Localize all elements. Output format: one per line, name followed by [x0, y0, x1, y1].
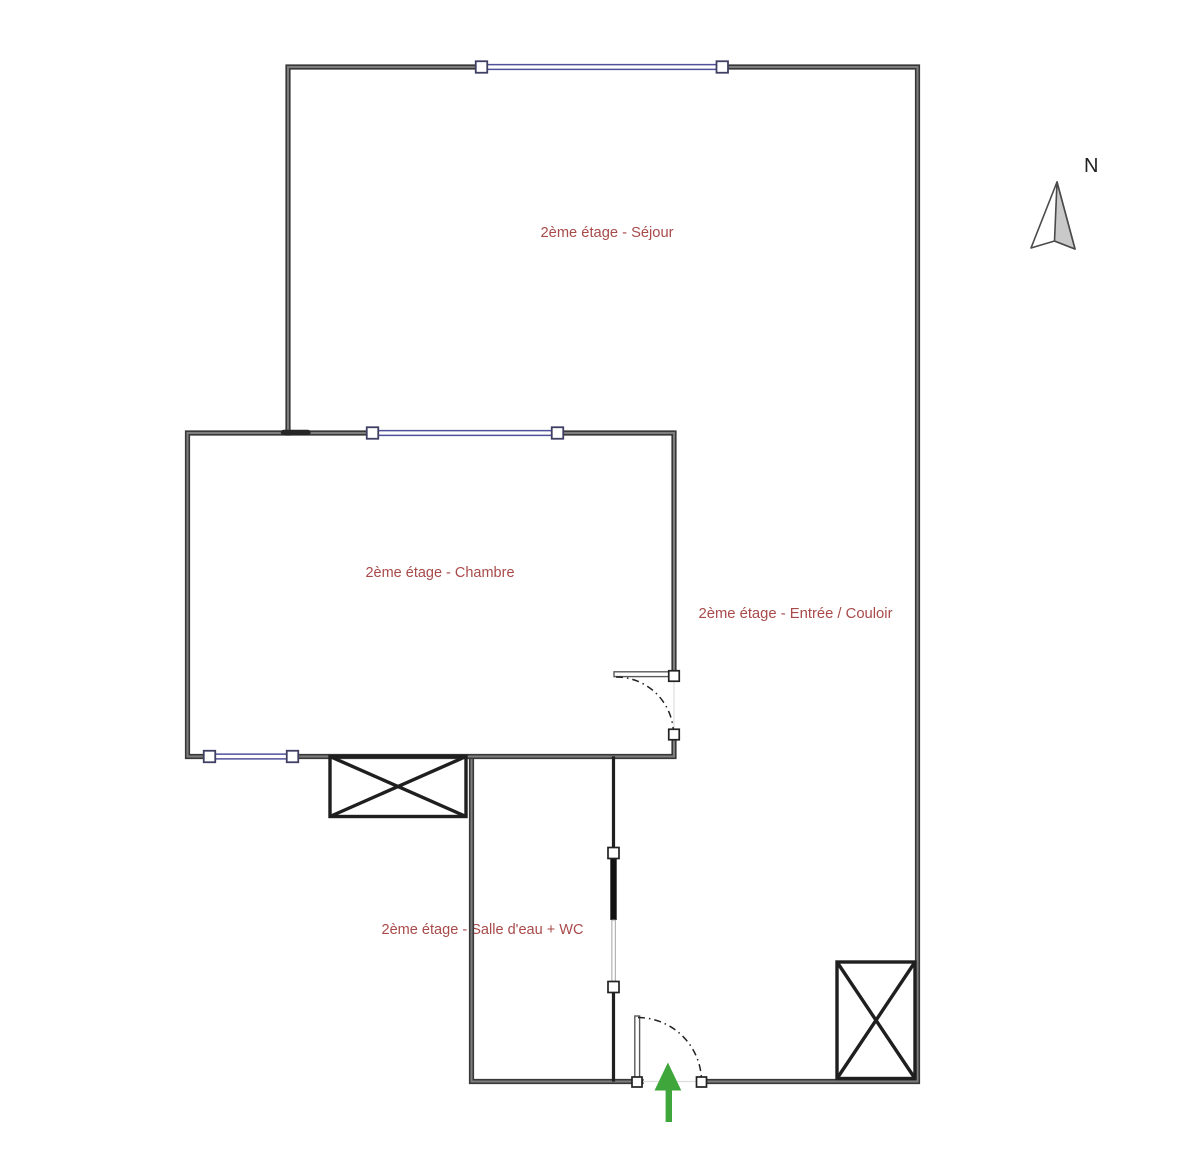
svg-text:N: N [1084, 155, 1098, 177]
svg-text:2ème étage - Entrée / Couloir: 2ème étage - Entrée / Couloir [699, 606, 893, 622]
svg-text:2ème étage - Chambre: 2ème étage - Chambre [366, 565, 515, 581]
svg-text:2ème étage - Séjour: 2ème étage - Séjour [541, 225, 674, 241]
svg-text:2ème étage - Salle d'eau + WC: 2ème étage - Salle d'eau + WC [382, 922, 584, 938]
